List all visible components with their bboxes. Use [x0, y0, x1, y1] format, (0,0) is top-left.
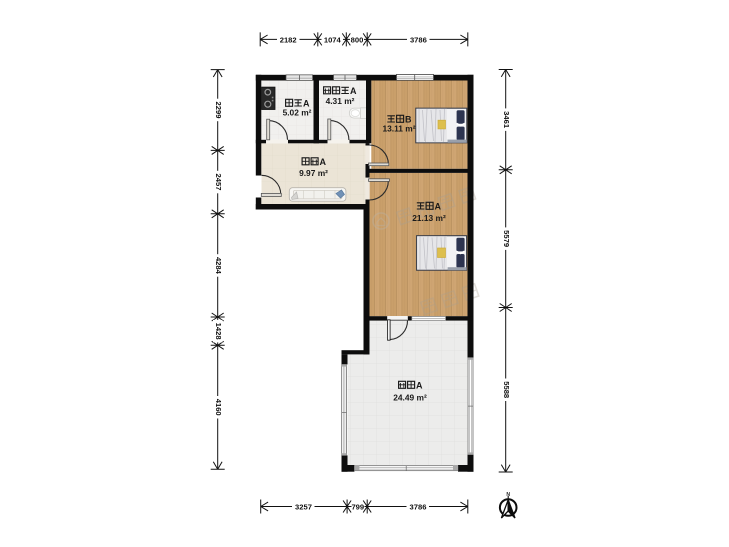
svg-text:5579: 5579	[502, 230, 511, 247]
svg-text:799: 799	[351, 502, 364, 511]
svg-text:24.49 m²: 24.49 m²	[393, 393, 427, 403]
svg-text:A: A	[320, 157, 327, 167]
svg-text:3257: 3257	[295, 502, 312, 511]
svg-text:4.31 m²: 4.31 m²	[326, 96, 355, 106]
svg-text:13.11 m²: 13.11 m²	[382, 124, 415, 134]
svg-text:A: A	[435, 201, 442, 211]
svg-text:4284: 4284	[214, 257, 223, 275]
svg-text:9.97 m²: 9.97 m²	[299, 168, 328, 178]
svg-text:4160: 4160	[214, 399, 223, 416]
svg-text:21.13 m²: 21.13 m²	[412, 213, 446, 223]
svg-text:A: A	[416, 380, 423, 390]
svg-text:A: A	[350, 86, 357, 96]
svg-text:2457: 2457	[214, 174, 223, 191]
svg-text:5.02 m²: 5.02 m²	[283, 108, 312, 118]
svg-text:2299: 2299	[214, 102, 223, 119]
svg-text:800: 800	[351, 35, 364, 44]
svg-text:3786: 3786	[410, 502, 427, 511]
svg-text:3786: 3786	[410, 35, 427, 44]
svg-text:1428: 1428	[214, 323, 223, 340]
svg-text:2182: 2182	[280, 35, 297, 44]
svg-text:N: N	[506, 492, 510, 498]
svg-text:1074: 1074	[324, 35, 342, 44]
svg-text:5588: 5588	[502, 381, 511, 398]
svg-text:3461: 3461	[502, 111, 511, 129]
